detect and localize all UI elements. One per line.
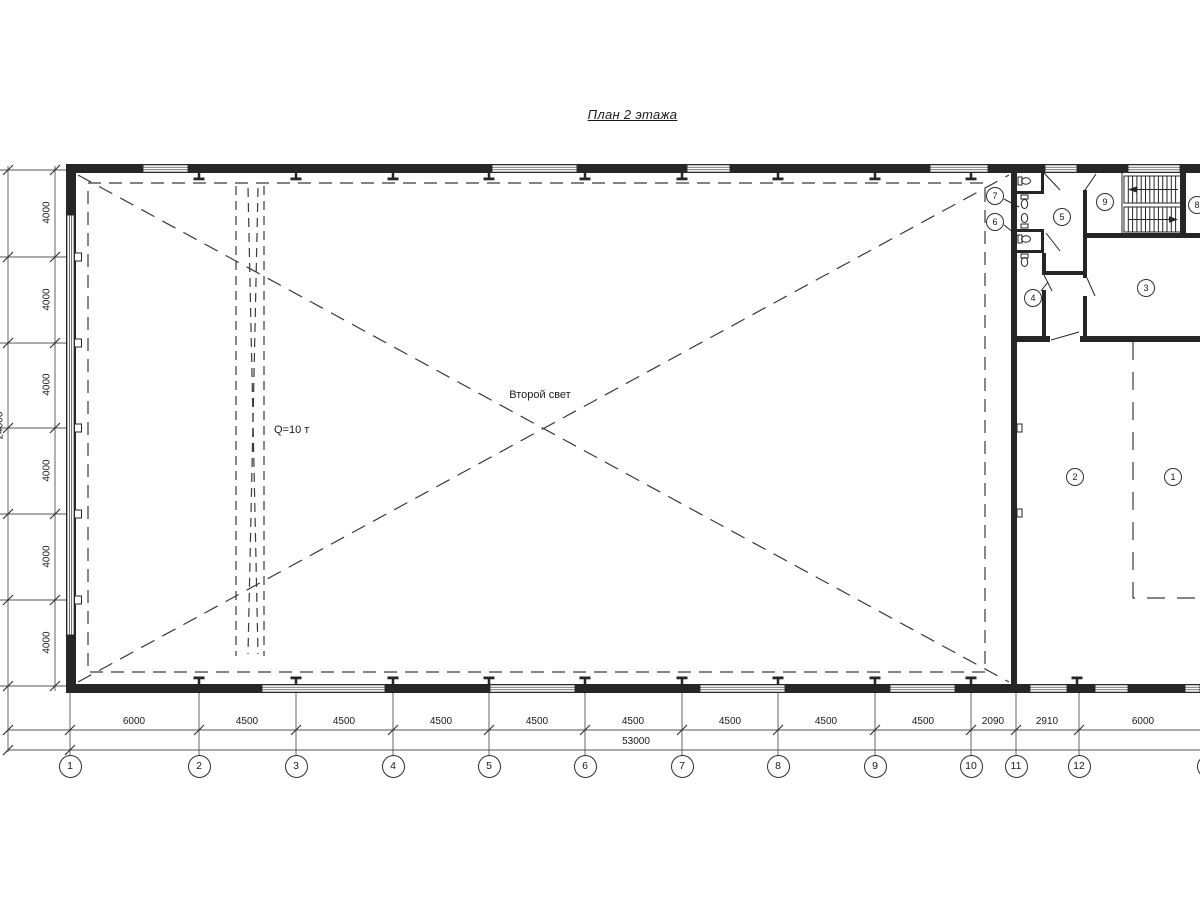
room-number-8: 8	[1188, 196, 1200, 214]
dim-bottom-6: 4500	[611, 716, 655, 727]
wc-icon	[1018, 235, 1031, 243]
axis-bubble-11: 11	[1005, 755, 1028, 778]
room-number-3: 3	[1137, 279, 1155, 297]
dim-left-5: 4000	[42, 535, 53, 579]
dim-left-4: 4000	[42, 449, 53, 493]
window-openings	[67, 165, 1200, 692]
room-number-7: 7	[986, 187, 1004, 205]
room-number-4: 4	[1024, 289, 1042, 307]
dim-left-6: 4000	[42, 621, 53, 665]
dim-bottom-4: 4500	[419, 716, 463, 727]
dim-bottom-9: 4500	[901, 716, 945, 727]
dim-left-total: 24000	[0, 404, 6, 448]
axis-bubble-8: 8	[767, 755, 790, 778]
dim-bottom-3: 4500	[322, 716, 366, 727]
room-number-9: 9	[1096, 193, 1114, 211]
dim-bottom-1: 6000	[112, 716, 156, 727]
axis-bubble-5: 5	[478, 755, 501, 778]
dim-bottom-5: 4500	[515, 716, 559, 727]
wc-icons	[1018, 177, 1031, 267]
dim-left-2: 4000	[42, 278, 53, 322]
axis-bubble-12: 12	[1068, 755, 1091, 778]
dim-bottom-11: 2910	[1025, 716, 1069, 727]
dim-left-1: 4000	[42, 191, 53, 235]
dim-bottom-12: 6000	[1121, 716, 1165, 727]
axis-bubble-6: 6	[574, 755, 597, 778]
axis-bubble-10: 10	[960, 755, 983, 778]
stair-direction-arrow-icon	[1128, 186, 1178, 222]
wc-icon	[1018, 177, 1031, 185]
second-light-label: Второй свет	[492, 389, 588, 401]
axis-bubble-1: 1	[59, 755, 82, 778]
axis-bubble-4: 4	[382, 755, 405, 778]
axis-bubble-7: 7	[671, 755, 694, 778]
left-dimension-lines	[0, 165, 66, 752]
dim-bottom-total: 53000	[606, 736, 666, 747]
plan-title: План 2 этажа	[545, 107, 720, 122]
room-number-1: 1	[1164, 468, 1182, 486]
dim-bottom-2: 4500	[225, 716, 269, 727]
room-number-5: 5	[1053, 208, 1071, 226]
staircase	[1124, 176, 1181, 232]
dim-bottom-8: 4500	[804, 716, 848, 727]
wc-icon	[1021, 254, 1028, 267]
axis-bubble-3: 3	[285, 755, 308, 778]
column-marks	[75, 173, 1083, 684]
wc-icon	[1021, 195, 1028, 209]
floor-plan-sheet: План 2 этажа Второй свет Q=10 т 6000 450…	[0, 0, 1200, 900]
dim-left-3: 4000	[42, 363, 53, 407]
room-number-6: 6	[986, 213, 1004, 231]
second-light-outline	[88, 183, 985, 672]
door-leaves	[1044, 173, 1096, 340]
axis-bubble-2: 2	[188, 755, 211, 778]
crane-capacity-label: Q=10 т	[274, 424, 309, 436]
cross-diagonals	[78, 175, 1009, 682]
wc-icon	[1021, 214, 1028, 229]
crane-runway	[236, 186, 264, 656]
dim-bottom-7: 4500	[708, 716, 752, 727]
axis-bubble-9: 9	[864, 755, 887, 778]
bottom-dimension-lines	[3, 693, 1200, 756]
room-number-2: 2	[1066, 468, 1084, 486]
dim-bottom-10: 2090	[971, 716, 1015, 727]
